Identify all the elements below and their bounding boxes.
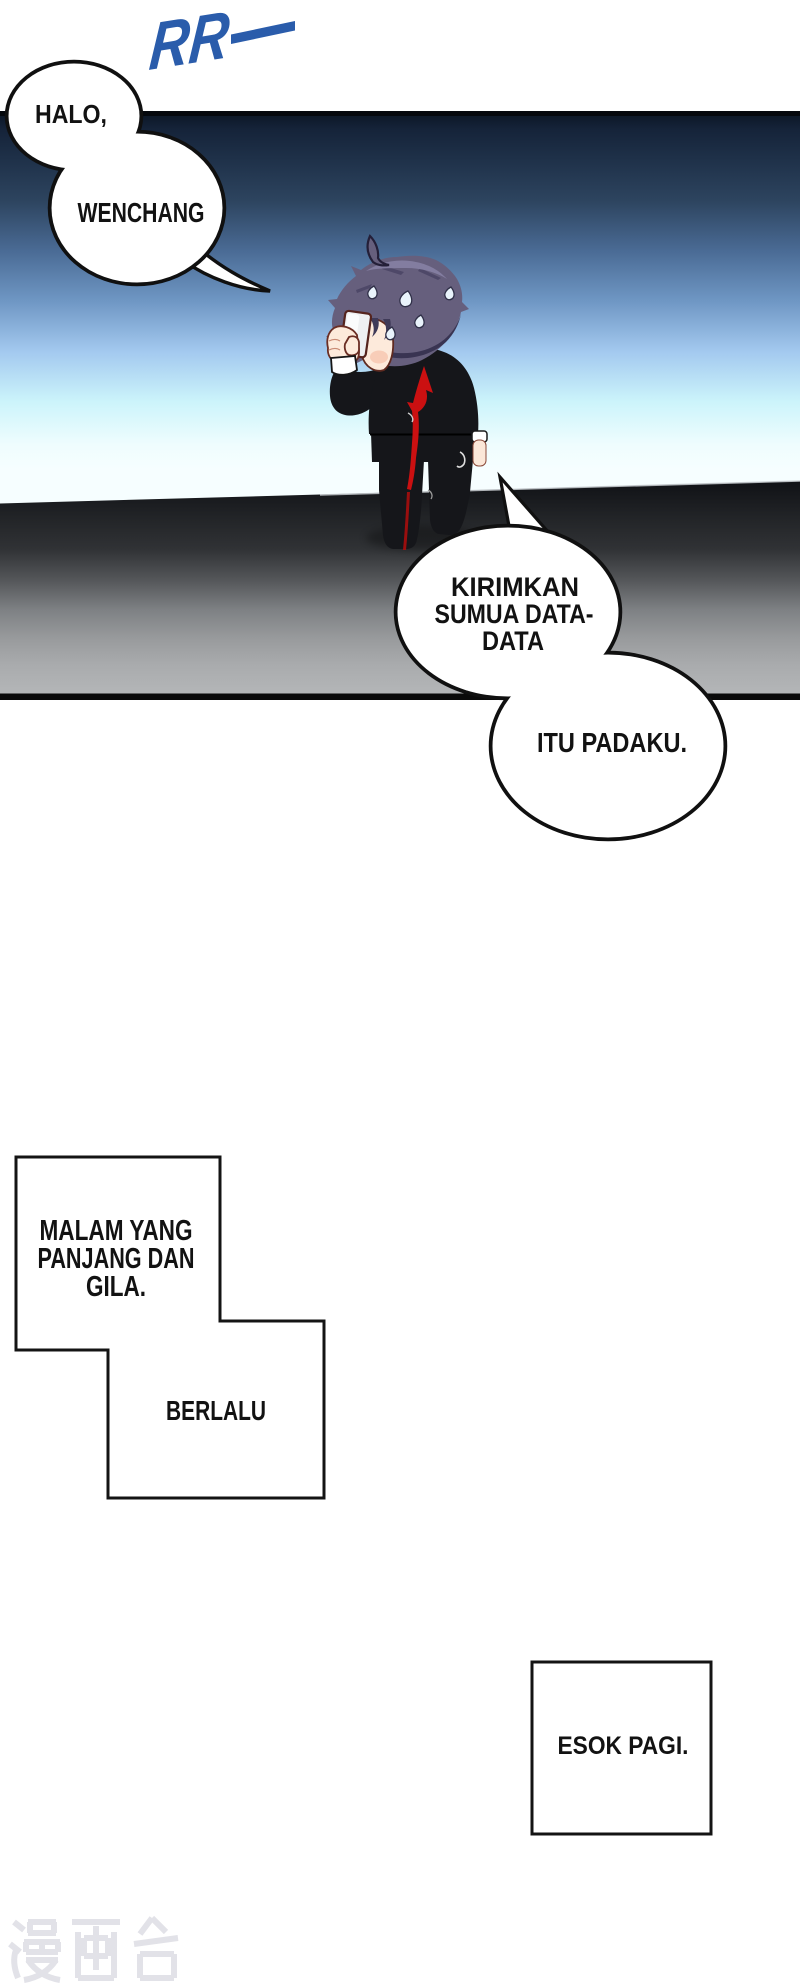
- svg-text:HALO,: HALO,: [35, 99, 107, 129]
- svg-text:GILA.: GILA.: [86, 1271, 146, 1303]
- svg-text:KIRIMKAN: KIRIMKAN: [451, 572, 579, 602]
- svg-text:SUMUA DATA-: SUMUA DATA-: [435, 599, 594, 629]
- svg-text:WENCHANG: WENCHANG: [78, 197, 205, 228]
- svg-text:ESOK PAGI.: ESOK PAGI.: [558, 1732, 689, 1760]
- svg-text:RR: RR: [147, 0, 233, 85]
- svg-text:DATA: DATA: [482, 626, 544, 656]
- svg-text:ITU PADAKU.: ITU PADAKU.: [537, 727, 687, 758]
- svg-text:BERLALU: BERLALU: [166, 1395, 266, 1426]
